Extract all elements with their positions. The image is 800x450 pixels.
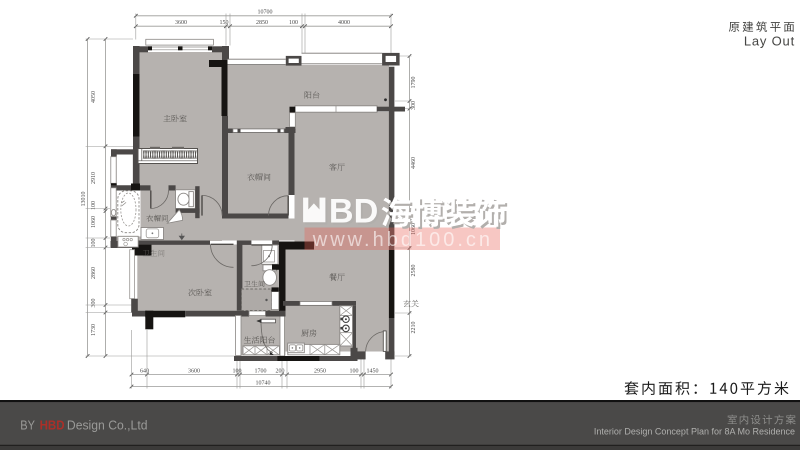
svg-text:Lay Out: Lay Out	[744, 34, 795, 49]
svg-text:Interior Design Concept Plan f: Interior Design Concept Plan for 8A Mo R…	[594, 427, 795, 437]
svg-text:BD: BD	[329, 192, 378, 230]
svg-text:10700: 10700	[258, 10, 273, 16]
svg-text:4050: 4050	[91, 91, 97, 103]
svg-text:2910: 2910	[91, 172, 97, 184]
svg-text:200: 200	[276, 368, 285, 374]
svg-text:2850: 2850	[256, 20, 268, 26]
svg-text:2210: 2210	[411, 322, 417, 334]
svg-text:4460: 4460	[411, 157, 417, 169]
svg-text:1730: 1730	[91, 324, 97, 336]
svg-text:300: 300	[91, 299, 97, 308]
svg-text:640: 640	[140, 368, 149, 374]
svg-text:1450: 1450	[367, 368, 379, 374]
svg-text:1790: 1790	[411, 77, 417, 89]
svg-text:www.hbd100.cn: www.hbd100.cn	[312, 229, 493, 251]
svg-text:3600: 3600	[188, 368, 200, 374]
svg-text:BY: BY	[20, 418, 35, 433]
svg-text:HBD: HBD	[40, 418, 65, 433]
svg-text:1700: 1700	[255, 368, 267, 374]
svg-text:13010: 13010	[81, 192, 87, 207]
svg-text:100: 100	[289, 20, 298, 26]
svg-text:10740: 10740	[256, 380, 271, 386]
svg-text:100: 100	[350, 368, 359, 374]
svg-text:1060: 1060	[91, 216, 97, 228]
svg-text:4000: 4000	[338, 20, 350, 26]
svg-text:2860: 2860	[91, 267, 97, 279]
svg-text:300: 300	[411, 101, 417, 110]
svg-text:2950: 2950	[314, 368, 326, 374]
svg-text:2580: 2580	[411, 265, 417, 277]
svg-text:150: 150	[220, 20, 229, 26]
svg-text:3600: 3600	[175, 20, 187, 26]
svg-text:Design Co.,Ltd: Design Co.,Ltd	[67, 418, 148, 433]
svg-text:100: 100	[91, 239, 97, 248]
